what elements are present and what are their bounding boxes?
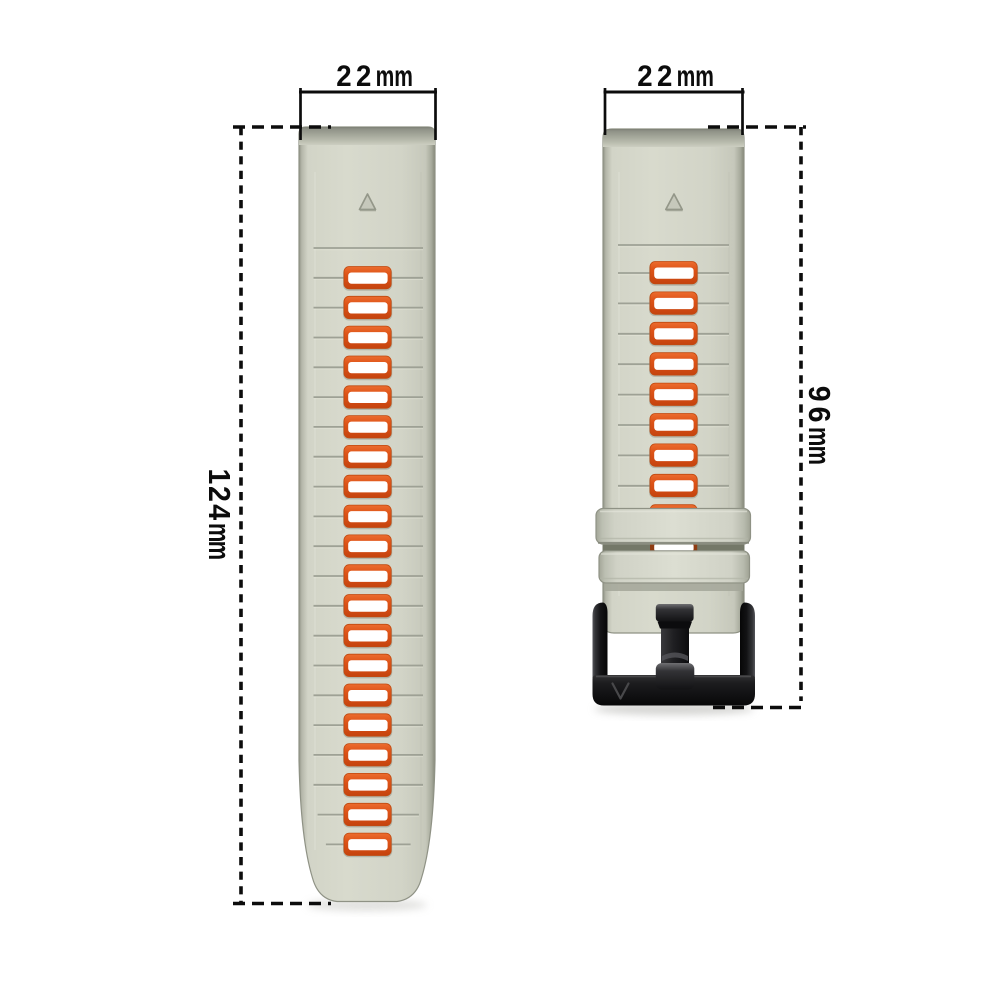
svg-text:m: m [376, 60, 395, 92]
svg-text:2: 2 [356, 60, 371, 93]
svg-text:m: m [802, 427, 837, 446]
svg-text:m: m [202, 523, 237, 542]
svg-text:m: m [394, 60, 413, 92]
svg-text:4: 4 [202, 504, 236, 520]
svg-text:1: 1 [202, 469, 236, 485]
svg-text:6: 6 [802, 407, 836, 423]
svg-text:m: m [802, 446, 837, 465]
svg-text:2: 2 [637, 60, 652, 93]
svg-text:m: m [202, 541, 237, 560]
svg-text:m: m [695, 60, 714, 92]
svg-text:2: 2 [336, 60, 351, 93]
svg-text:2: 2 [657, 60, 672, 93]
svg-text:m: m [677, 60, 696, 92]
svg-text:2: 2 [202, 486, 236, 502]
svg-text:9: 9 [802, 386, 836, 402]
